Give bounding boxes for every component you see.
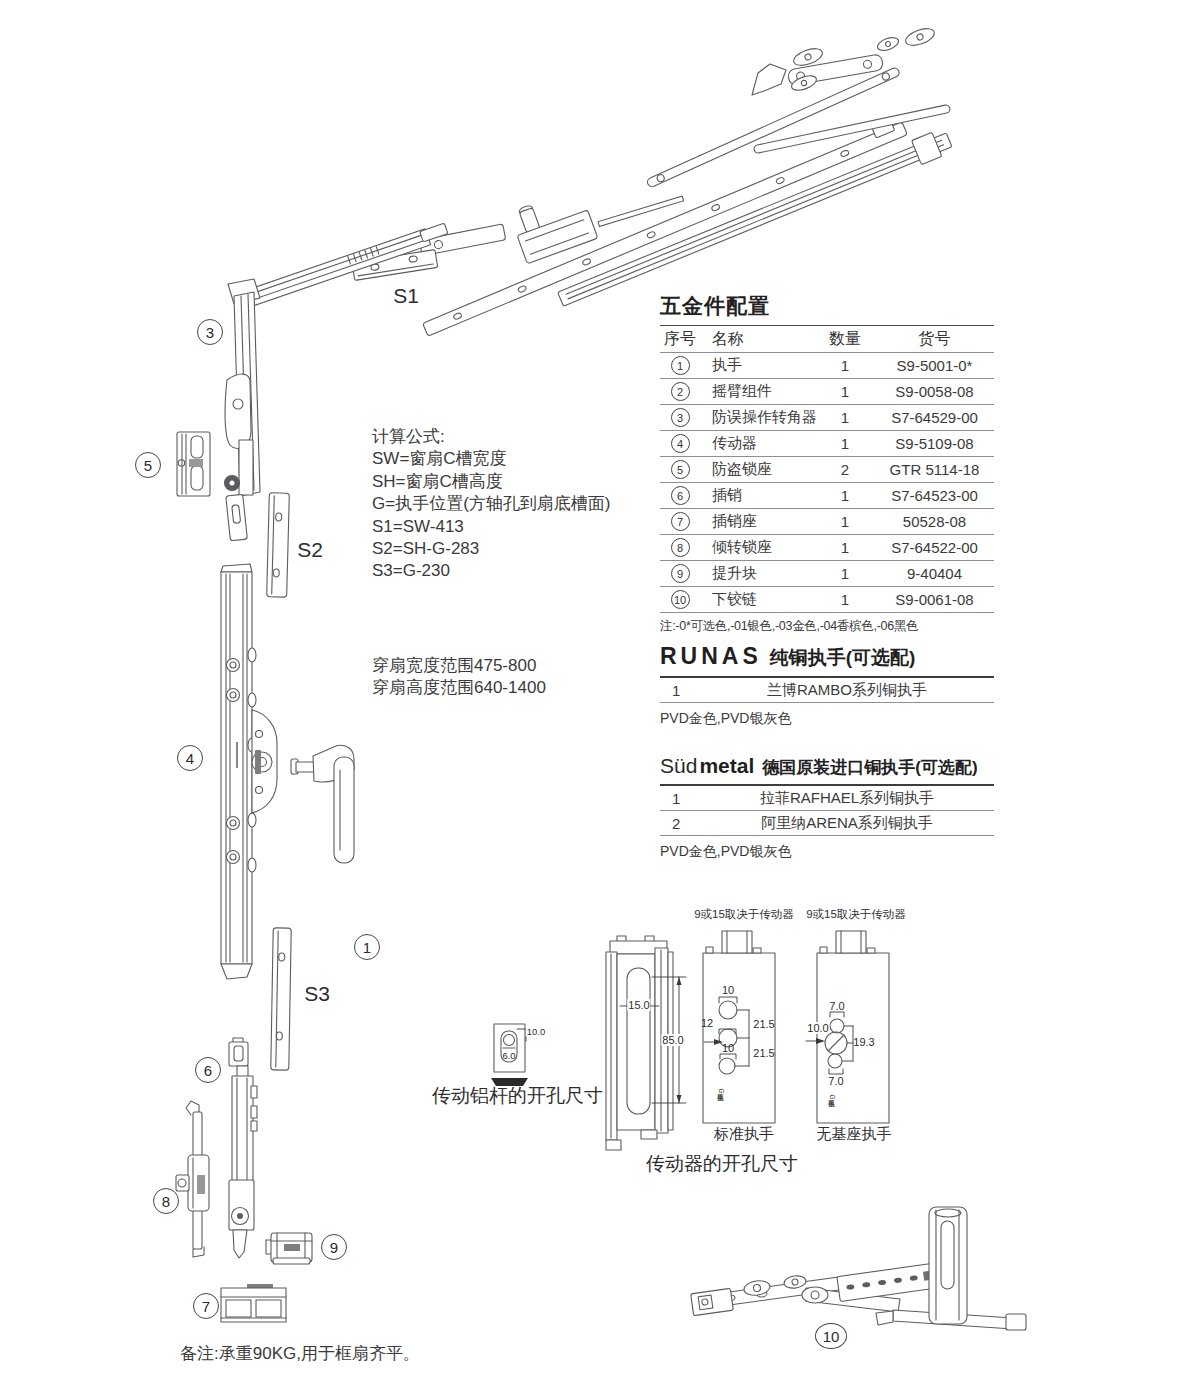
handle-position-label: 执手位置G [716,1088,725,1093]
item-name: 拉菲RAFHAEL系列铜执手 [700,789,994,808]
row-no-badge: 8 [671,538,690,557]
row-code: GTR 5114-18 [875,461,994,478]
row-no-badge: 6 [671,486,690,505]
table-row: 4 传动器 1 S9-5109-08 [660,431,994,457]
row-qty: 1 [815,487,875,504]
row-no-badge: 1 [671,356,690,375]
callout-lock-keeper: 5 [135,452,161,478]
row-code: S9-5109-08 [875,435,994,452]
row-no-badge: 10 [671,590,690,609]
driver-drill-title: 传动器的开孔尺寸 [646,1151,798,1177]
item-no: 1 [660,790,700,807]
formula-line: S2=SH-G-283 [372,538,610,560]
row-qty: 1 [815,565,875,582]
formula-line: S3=G-230 [372,560,610,582]
row-no-badge: 9 [671,564,690,583]
size-label-s2: S2 [297,538,323,562]
table-row: 7 插销座 1 50528-08 [660,509,994,535]
item-name: 兰博RAMBO系列铜执手 [700,681,994,700]
row-name: 插销 [700,486,815,505]
dim-hole-top: 10 [721,984,735,996]
s3-plate-drawing [271,928,291,1070]
driver-depends-note: 9或15取决于传动器 [694,907,794,922]
rod-drill-title: 传动铝杆的开孔尺寸 [432,1083,603,1109]
row-code: 50528-08 [875,513,994,530]
formula-line: S1=SW-413 [372,516,610,538]
table-row: 1 执手 1 S9-5001-0* [660,353,994,379]
std-handle-label: 标准执手 [714,1125,774,1144]
row-code: S7-64523-00 [875,487,994,504]
table-row: 9 提升块 1 9-40404 [660,561,994,587]
handle-position-label: 执手位置G [827,1094,836,1099]
row-name: 倾转锁座 [700,538,815,557]
header-code: 货号 [875,329,994,350]
sudmetal-logo-light: Süd [660,754,697,778]
scissor-stay-drawing [419,25,954,336]
dim-nb-top: 7.0 [828,1000,845,1012]
bottom-hinge-drawing [691,1207,1026,1330]
color-options-note: 注:-0*可选色,-01银色,-03金色,-04香槟色,-06黑色 [660,618,994,635]
table-row: 5 防盗锁座 2 GTR 5114-18 [660,457,994,483]
parts-table-title: 五金件配置 [660,292,994,326]
row-code: S9-5001-0* [875,357,994,374]
list-item: 1 拉菲RAFHAEL系列铜执手 [660,786,994,811]
row-qty: 1 [815,591,875,608]
callout-lift-block: 9 [321,1234,347,1260]
row-no-badge: 4 [671,434,690,453]
lift-block-drawing [266,1233,312,1264]
list-item: 2 阿里纳ARENA系列铜执手 [660,811,994,836]
row-code: S9-0058-08 [875,383,994,400]
drive-gear-drawing [221,564,277,979]
row-no-badge: 5 [671,460,690,479]
dim-gap-upper: 21.5 [752,1018,775,1030]
driver-depends-note: 9或15取决于传动器 [806,907,906,922]
sudmetal-logo-bold: metal [699,754,754,778]
dim-gap-lower: 21.5 [752,1047,775,1059]
sudmetal-section: Süd metal 德国原装进口铜执手(可选配) 1 拉菲RAFHAEL系列铜执… [660,754,994,861]
callout-bottom-hinge: 10 [815,1323,847,1349]
row-qty: 1 [815,539,875,556]
row-name: 摇臂组件 [700,382,815,401]
s2-plate-drawing [267,493,290,597]
dim-slot-height: 85.0 [661,1034,684,1046]
table-row: 3 防误操作转角器 1 S7-64529-00 [660,405,994,431]
dim-nb-bottom: 7.0 [827,1075,844,1087]
formula-block: 计算公式: SW=窗扇C槽宽度 SH=窗扇C槽高度 G=执手位置(方轴孔到扇底槽… [372,426,610,583]
table-row: 2 摇臂组件 1 S9-0058-08 [660,379,994,405]
runas-heading: RUNAS 纯铜执手(可选配) [660,643,994,678]
header-qty: 数量 [815,329,875,350]
row-name: 执手 [700,356,815,375]
table-row: 8 倾转锁座 1 S7-64522-00 [660,535,994,561]
row-name: 插销座 [700,512,815,531]
sudmetal-finish: PVD金色,PVD银灰色 [660,843,994,861]
parts-table-header: 序号 名称 数量 货号 [660,326,994,353]
row-qty: 1 [815,383,875,400]
callout-bolt: 6 [195,1057,221,1083]
handle-drawing [291,745,354,863]
dim-hole-mid: 12 [700,1017,714,1029]
runas-section: RUNAS 纯铜执手(可选配) 1 兰博RAMBO系列铜执手 PVD金色,PVD… [660,643,994,728]
item-no: 2 [660,815,700,832]
table-row: 6 插销 1 S7-64523-00 [660,483,994,509]
row-name: 提升块 [700,564,815,583]
item-no: 1 [660,682,700,699]
formula-line: SW=窗扇C槽宽度 [372,448,610,470]
row-no-badge: 3 [671,408,690,427]
size-label-s3: S3 [304,982,330,1006]
row-name: 防误操作转角器 [700,408,815,427]
row-name: 防盗锁座 [700,460,815,479]
lock-keeper-drawing [177,432,210,496]
dim-hole-bottom: 10 [721,1042,735,1054]
dim-rod-slot: 6.0 [501,1050,516,1061]
exploded-diagram [0,0,1200,1400]
sudmetal-heading: Süd metal 德国原装进口铜执手(可选配) [660,754,994,786]
row-qty: 1 [815,435,875,452]
list-item: 1 兰博RAMBO系列铜执手 [660,678,994,703]
tilt-keeper-drawing [176,1101,209,1257]
row-name: 下铰链 [700,590,815,609]
row-no-badge: 7 [671,512,690,531]
hardware-catalog-page: { "parts_table": { "title": "五金件配置", "he… [0,0,1200,1400]
row-qty: 2 [815,461,875,478]
dim-nb-gap: 19.3 [852,1036,875,1048]
row-name: 传动器 [700,434,815,453]
formula-line: SH=窗扇C槽高度 [372,471,610,493]
row-code: S7-64522-00 [875,539,994,556]
range-block: 穿扇宽度范围475-800 穿扇高度范围640-1400 [372,655,546,700]
row-code: 9-40404 [875,565,994,582]
callout-drive-gear: 4 [177,745,203,771]
nobase-handle-label: 无基座执手 [817,1125,892,1144]
dim-slot-width: 15.0 [627,999,650,1011]
header-name: 名称 [700,329,815,350]
formula-title: 计算公式: [372,426,610,448]
runas-finish: PVD金色,PVD银灰色 [660,710,994,728]
parts-table: 五金件配置 序号 名称 数量 货号 1 执手 1 S9-5001-0* 2 摇臂… [660,292,994,635]
sudmetal-title: 德国原装进口铜执手(可选配) [762,756,977,779]
dim-nb-offset: 10.0 [806,1022,829,1034]
range-line: 穿扇宽度范围475-800 [372,655,546,677]
size-label-s1: S1 [393,284,419,308]
runas-logo: RUNAS [660,643,762,670]
bolt-keeper-drawing [221,1284,286,1322]
row-qty: 1 [815,409,875,426]
item-name: 阿里纳ARENA系列铜执手 [700,814,994,833]
footer-note: 备注:承重90KG,用于框扇齐平。 [180,1342,420,1365]
range-line: 穿扇高度范围640-1400 [372,677,546,699]
row-code: S9-0061-08 [875,591,994,608]
row-code: S7-64529-00 [875,409,994,426]
bolt-drawing [229,1038,257,1258]
callout-handle: 1 [354,934,380,960]
header-no: 序号 [660,329,700,350]
callout-tilt-keeper: 8 [153,1188,179,1214]
callout-bolt-keeper: 7 [193,1293,219,1319]
callout-corner-drive: 3 [197,319,223,345]
row-qty: 1 [815,513,875,530]
formula-line: G=执手位置(方轴孔到扇底槽面) [372,493,610,515]
row-no-badge: 2 [671,382,690,401]
row-qty: 1 [815,357,875,374]
runas-title: 纯铜执手(可选配) [770,645,916,671]
dim-rod-width: 10.0 [526,1026,547,1037]
table-row: 10 下铰链 1 S9-0061-08 [660,587,994,613]
